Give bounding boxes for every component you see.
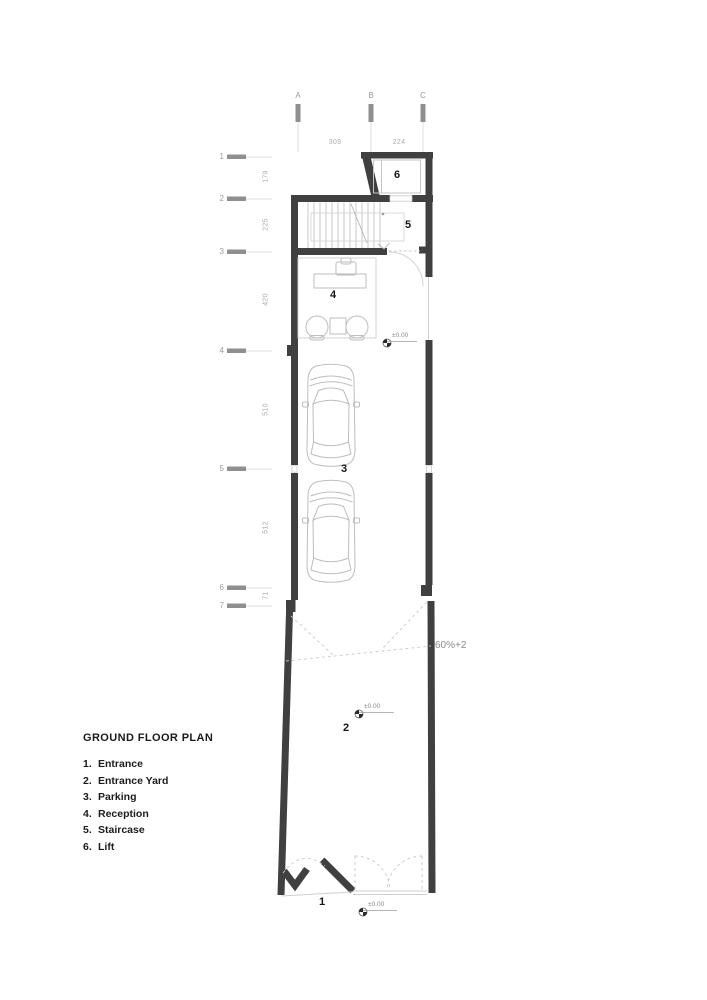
legend-item-entrance: 1. Entrance <box>83 758 168 775</box>
legend-item-staircase: 5. Staircase <box>83 824 168 841</box>
staircase-direction-arrow <box>351 204 390 249</box>
room-number-reception: 4 <box>330 289 336 301</box>
ramp-slope-note: 60%+2 <box>435 640 466 651</box>
legend-item-parking: 3. Parking <box>83 791 168 808</box>
grid-column-label-b: B <box>361 91 381 100</box>
car-2 <box>303 480 360 582</box>
room-number-staircase: 5 <box>405 219 411 231</box>
grid-row-label-3: 3 <box>206 247 224 256</box>
dimension-left-5-6: 512 <box>263 511 270 545</box>
dimension-top-bc: 224 <box>382 139 416 146</box>
dimension-top-ab: 309 <box>318 139 352 146</box>
grid-row-label-7: 7 <box>206 601 224 610</box>
grid-row-label-5: 5 <box>206 464 224 473</box>
room-number-parking: 3 <box>341 463 347 475</box>
room-number-entrance: 1 <box>319 896 325 908</box>
ramp-lines <box>286 602 431 661</box>
grid-row-label-4: 4 <box>206 346 224 355</box>
reception-seating <box>306 316 368 340</box>
level-marker-yard <box>355 710 394 718</box>
grid-row-label-2: 2 <box>206 194 224 203</box>
dimension-left-4-5: 510 <box>263 393 270 427</box>
level-marker-reception <box>383 339 417 347</box>
legend-item-reception: 4. Reception <box>83 808 168 825</box>
legend-item-lift: 6. Lift <box>83 841 168 858</box>
legend-list: 1. Entrance 2. Entrance Yard 3. Parking … <box>83 758 168 857</box>
door-swing-staircase <box>389 251 423 286</box>
room-number-entrance-yard: 2 <box>343 722 349 734</box>
level-text-yard: ±0.00 <box>364 703 380 710</box>
level-marker-entrance <box>359 908 397 916</box>
floor-plan-sheet: A B C 309 224 1 2 3 4 5 6 7 179 225 420 … <box>0 0 707 1000</box>
entrance-threshold <box>281 891 427 896</box>
reception-desk <box>314 258 366 288</box>
level-text-reception: ±0.00 <box>392 332 408 339</box>
dimension-left-6-7: 71 <box>263 579 270 613</box>
legend-item-entrance-yard: 2. Entrance Yard <box>83 775 168 792</box>
car-1 <box>303 364 360 466</box>
grid-column-label-a: A <box>288 91 308 100</box>
staircase-outline <box>311 213 404 241</box>
grid-row-label-6: 6 <box>206 583 224 592</box>
page-title: GROUND FLOOR PLAN <box>83 732 213 744</box>
room-number-lift: 6 <box>394 169 400 181</box>
dimension-left-3-4: 420 <box>263 283 270 317</box>
grid-row-label-1: 1 <box>206 152 224 161</box>
legend: GROUND FLOOR PLAN 1. Entrance 2. Entranc… <box>83 732 213 857</box>
level-text-entrance: ±0.00 <box>368 901 384 908</box>
grid-column-label-c: C <box>413 91 433 100</box>
dimension-left-1-2: 179 <box>263 160 270 194</box>
dimension-left-2-3: 225 <box>263 208 270 242</box>
reception-outline <box>298 258 376 338</box>
